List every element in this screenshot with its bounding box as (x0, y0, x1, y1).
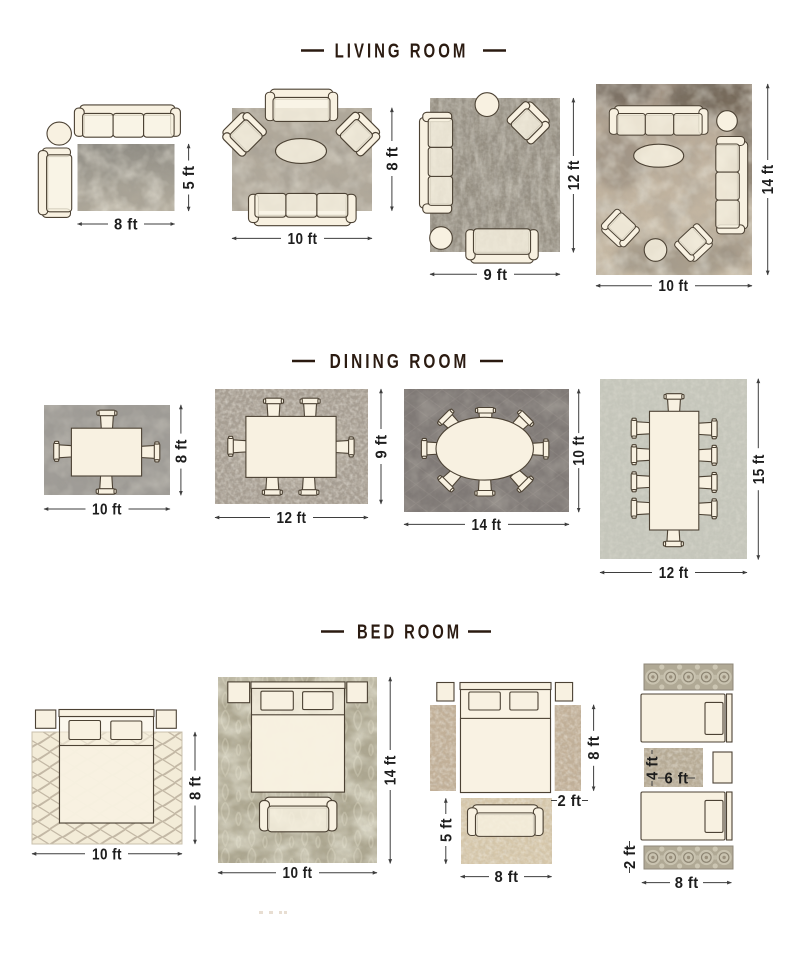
svg-text:5 ft: 5 ft (181, 166, 198, 190)
svg-text:14 ft: 14 ft (760, 164, 777, 194)
svg-text:10 ft: 10 ft (571, 436, 588, 466)
svg-text:10 ft: 10 ft (92, 846, 122, 863)
svg-text:8 ft: 8 ft (495, 869, 519, 886)
svg-text:14 ft: 14 ft (383, 755, 400, 785)
svg-text:4 ft: 4 ft (645, 756, 662, 780)
svg-text:DINING ROOM: DINING ROOM (330, 350, 470, 372)
svg-text:5 ft: 5 ft (438, 818, 455, 842)
svg-text:12 ft: 12 ft (566, 160, 583, 190)
svg-text:9 ft: 9 ft (484, 267, 508, 284)
svg-text:10 ft: 10 ft (283, 865, 313, 882)
svg-text:10 ft: 10 ft (658, 278, 688, 295)
svg-text:9 ft: 9 ft (374, 435, 391, 459)
svg-text:8 ft: 8 ft (173, 439, 190, 463)
svg-text:8 ft: 8 ft (114, 217, 138, 234)
svg-text:12 ft: 12 ft (277, 510, 307, 527)
svg-text:2 ft: 2 ft (558, 793, 582, 810)
svg-text:8 ft: 8 ft (675, 875, 699, 892)
svg-text:LIVING ROOM: LIVING ROOM (335, 39, 469, 62)
svg-text:8 ft: 8 ft (188, 776, 205, 800)
svg-text:12 ft: 12 ft (659, 565, 689, 582)
svg-text:2 ft: 2 ft (622, 845, 639, 869)
svg-text:BED ROOM: BED ROOM (357, 620, 462, 643)
svg-text:14 ft: 14 ft (472, 517, 502, 534)
svg-text:8 ft: 8 ft (384, 147, 401, 171)
svg-text:15 ft: 15 ft (751, 454, 768, 484)
svg-text:10 ft: 10 ft (92, 502, 122, 519)
svg-text:10 ft: 10 ft (288, 231, 318, 248)
svg-text:6 ft: 6 ft (665, 771, 689, 788)
svg-text:8 ft: 8 ft (586, 736, 603, 760)
